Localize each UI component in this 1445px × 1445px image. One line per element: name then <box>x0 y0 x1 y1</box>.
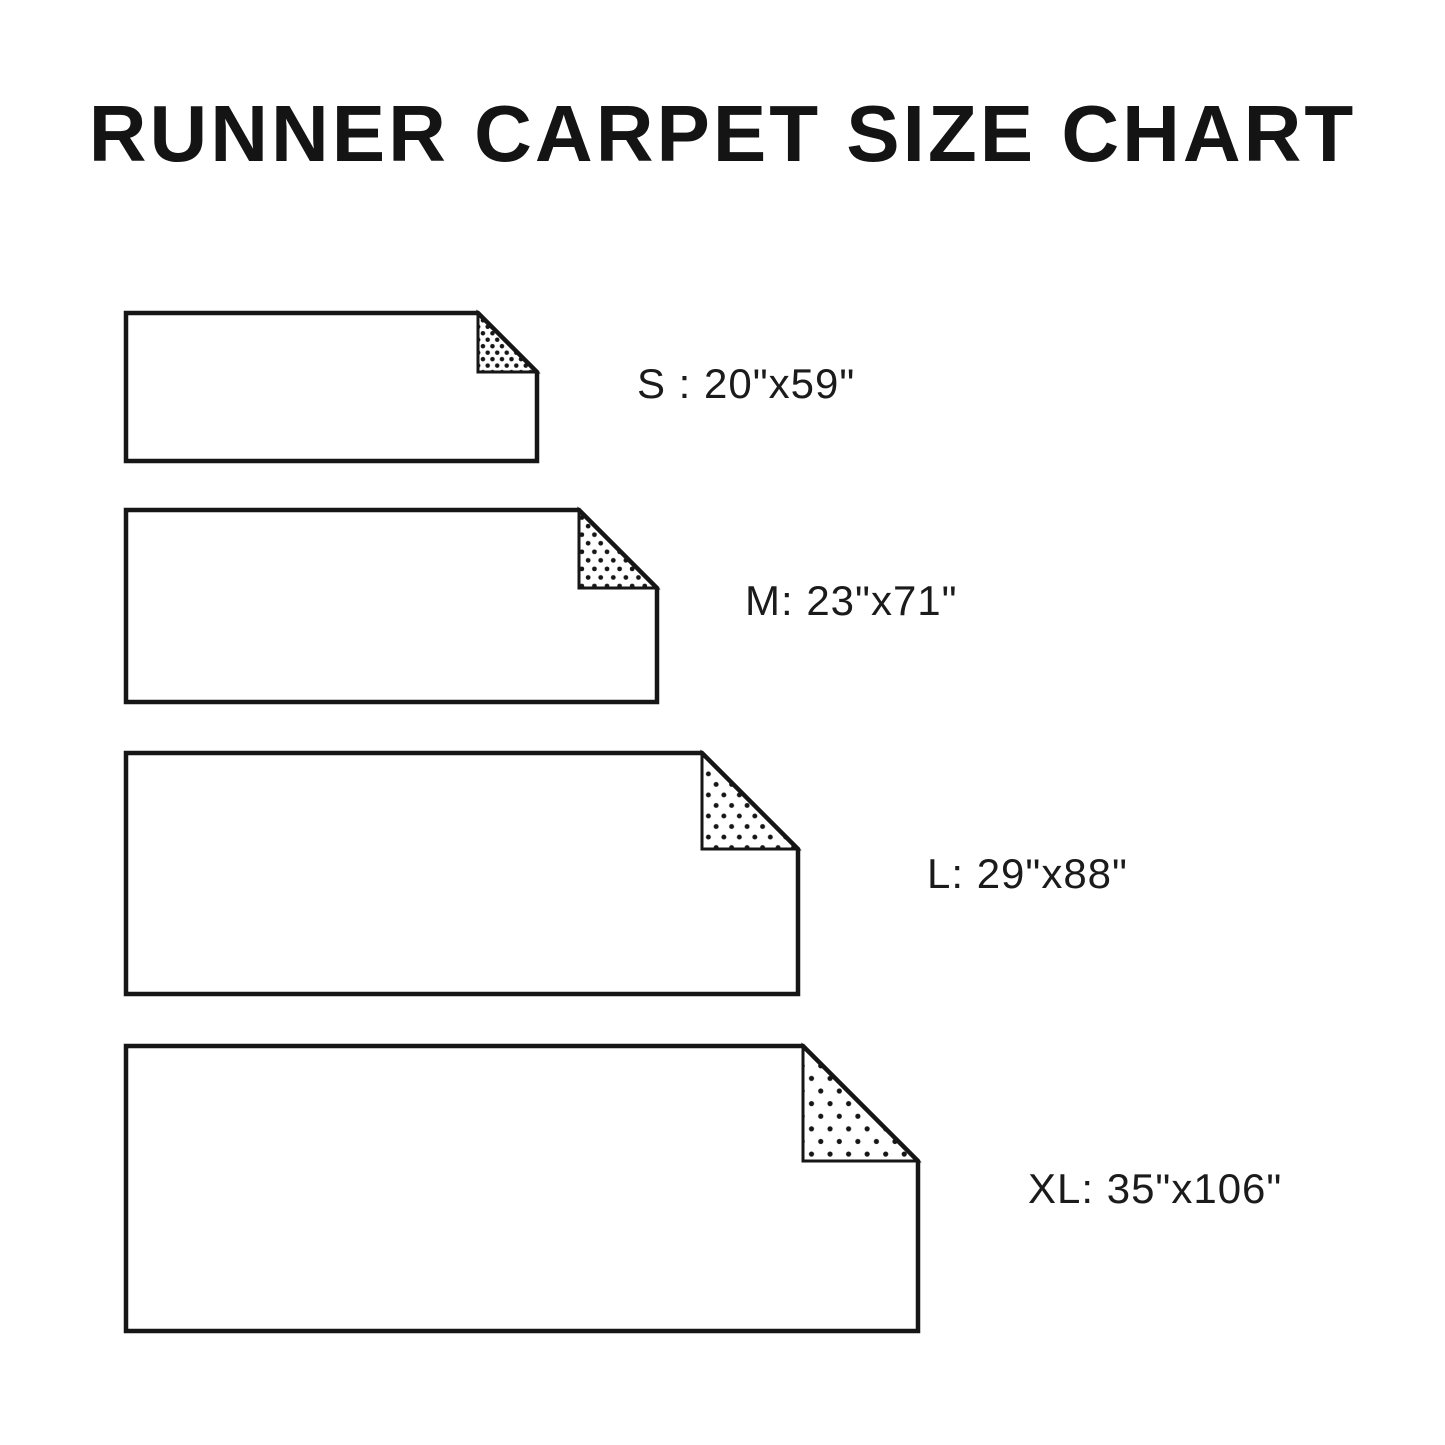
carpet-shape-m <box>126 510 657 702</box>
carpet-diagram <box>0 0 1445 1445</box>
size-label-s: S : 20"x59" <box>637 360 855 408</box>
carpet-outline-m <box>126 510 657 702</box>
size-label-m: M: 23"x71" <box>745 577 958 625</box>
size-label-xl: XL: 35"x106" <box>1028 1165 1282 1213</box>
carpet-shape-l <box>126 753 798 994</box>
runner-carpet-size-chart: RUNNER CARPET SIZE CHART S : 20"x59" M: … <box>0 0 1445 1445</box>
carpet-outline-s <box>126 313 537 461</box>
carpet-outline-l <box>126 753 798 994</box>
carpet-outline-xl <box>126 1046 918 1331</box>
carpet-shape-s <box>126 313 537 461</box>
carpet-shape-xl <box>126 1046 918 1331</box>
size-label-l: L: 29"x88" <box>927 850 1128 898</box>
